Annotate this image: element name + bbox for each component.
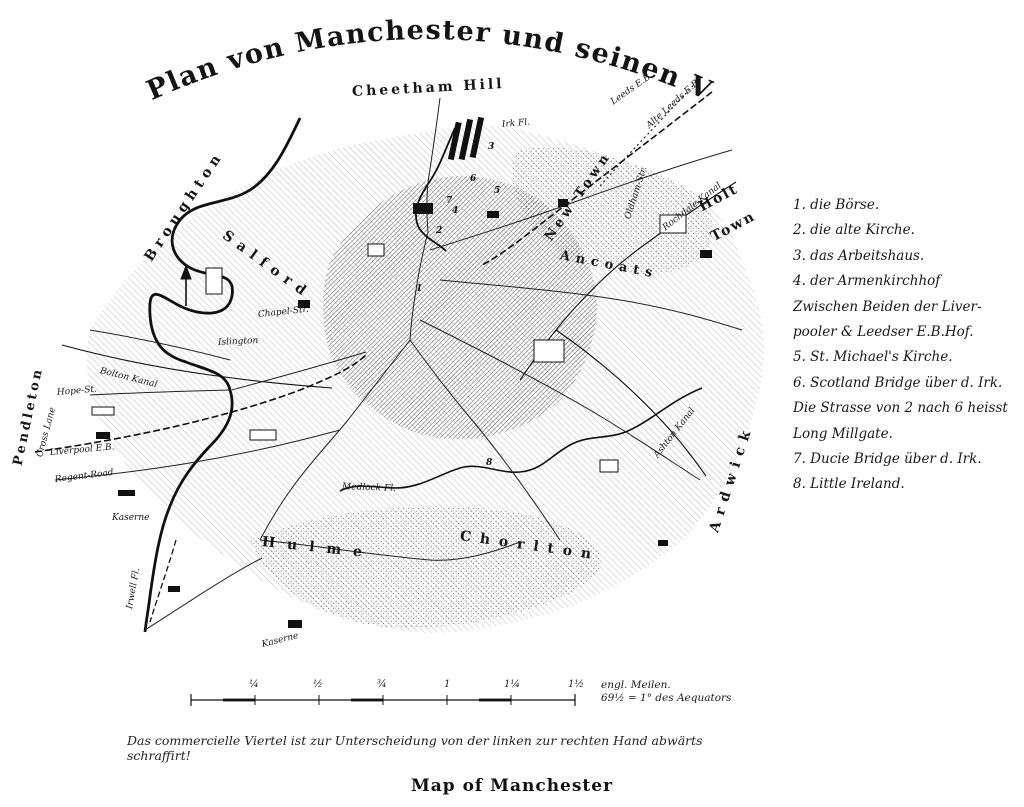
legend-item-1: 1. die Börse. bbox=[793, 193, 1021, 218]
legend-item-8: 8. Little Ireland. bbox=[793, 472, 1021, 497]
scale-tick-one-quarter: 1¼ bbox=[504, 679, 520, 690]
map-marker-4-armenkirchhof: 4 bbox=[452, 206, 458, 216]
legend-item-5: 5. St. Michael's Kirche. bbox=[793, 345, 1021, 370]
legend-item-4: 4. der Armenkirchhof bbox=[793, 269, 1021, 294]
scale-tick-three-quarter: ¾ bbox=[377, 679, 387, 690]
map-marker-1-boerse: 1 bbox=[416, 284, 422, 294]
scale-unit-line1: engl. Meilen. bbox=[601, 679, 731, 692]
legend-item-7: 7. Ducie Bridge über d. Irk. bbox=[793, 447, 1021, 472]
map-marker-5-st-michaels: 5 bbox=[494, 186, 500, 196]
map-label-medlock-river: Medlock Fl. bbox=[342, 482, 396, 494]
legend-note-liverpool-leeds-1: Zwischen Beiden der Liver- bbox=[793, 295, 1021, 320]
legend-note-long-millgate-1: Die Strasse von 2 nach 6 heisst bbox=[793, 396, 1021, 421]
legend-note-long-millgate-2: Long Millgate. bbox=[793, 422, 1021, 447]
map-label-kaserne-salford: Kaserne bbox=[112, 513, 149, 523]
scale-tick-one: 1 bbox=[444, 679, 450, 690]
map-marker-2-alte-kirche: 2 bbox=[436, 226, 442, 236]
legend-item-6: 6. Scotland Bridge über d. Irk. bbox=[793, 371, 1021, 396]
legend-item-3: 3. das Arbeitshaus. bbox=[793, 244, 1021, 269]
map-label-islington: Islington bbox=[218, 336, 259, 348]
legend: 1. die Börse. 2. die alte Kirche. 3. das… bbox=[793, 193, 1021, 498]
hatching-note-caption: Das commercielle Viertel ist zur Untersc… bbox=[127, 733, 767, 763]
map-marker-6-scotland-bridge: 6 bbox=[470, 174, 476, 184]
map-marker-7-ducie-bridge: 7 bbox=[446, 196, 452, 206]
scale-bar bbox=[191, 694, 575, 706]
scale-tick-quarter: ¼ bbox=[249, 679, 259, 690]
scale-unit-line2: 69½ = 1° des Aequators bbox=[601, 692, 731, 705]
scanned-map-page: Plan von Manchester und seinen Vorstädte… bbox=[0, 0, 1024, 807]
legend-item-2: 2. die alte Kirche. bbox=[793, 218, 1021, 243]
map-marker-8-little-ireland: 8 bbox=[486, 458, 492, 468]
map-marker-3-arbeitshaus: 3 bbox=[488, 142, 494, 152]
scale-units: engl. Meilen. 69½ = 1° des Aequators bbox=[601, 679, 731, 705]
legend-note-liverpool-leeds-2: pooler & Leedser E.B.Hof. bbox=[793, 320, 1021, 345]
scale-tick-one-half: 1½ bbox=[568, 679, 584, 690]
scale-tick-half: ½ bbox=[313, 679, 323, 690]
railway-south bbox=[150, 540, 176, 622]
figure-title: Map of Manchester bbox=[0, 776, 1024, 796]
